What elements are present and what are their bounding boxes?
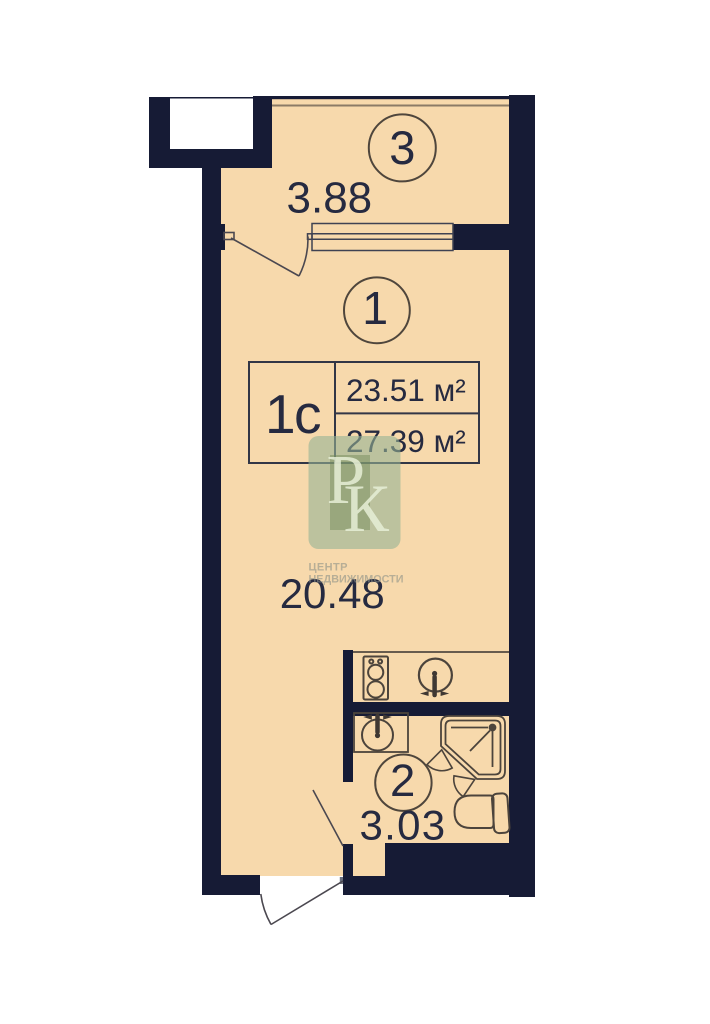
svg-text:23.51 м²: 23.51 м² bbox=[346, 372, 466, 408]
svg-text:3: 3 bbox=[389, 121, 415, 174]
svg-text:ЦЕНТР: ЦЕНТР bbox=[309, 562, 348, 574]
svg-text:НЕДВИЖИМОСТИ: НЕДВИЖИМОСТИ bbox=[309, 574, 404, 586]
svg-text:1с: 1с bbox=[265, 383, 321, 445]
svg-text:1: 1 bbox=[362, 282, 388, 334]
svg-text:3.03: 3.03 bbox=[360, 802, 447, 849]
svg-text:3.88: 3.88 bbox=[287, 174, 373, 223]
svg-text:2: 2 bbox=[390, 755, 415, 806]
svg-text:К: К bbox=[344, 470, 390, 546]
